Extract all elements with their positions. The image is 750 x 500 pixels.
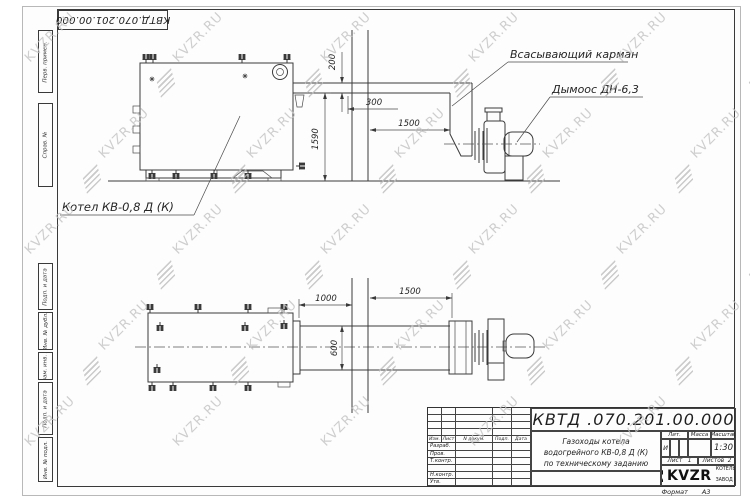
boiler-label: Котел КВ-0,8 Д (К) xyxy=(62,200,174,214)
title-block-doc-number: КВТД .070.201.00.000 xyxy=(531,408,736,431)
title-block-cell xyxy=(512,465,531,472)
kvzr-logo-icon xyxy=(661,470,663,482)
annotation-suction-pocket: Всасывающий карман xyxy=(510,48,638,61)
title-block-cell xyxy=(456,443,493,450)
company-name-line1: КОТЕЛЬНЫЙ xyxy=(716,467,736,472)
title-block-cell xyxy=(493,415,512,422)
sheets-cell: Листов 2 xyxy=(698,457,736,465)
title-block-cell xyxy=(456,408,493,415)
lit-header: Лит. xyxy=(661,431,688,439)
format-label: Формат А3 xyxy=(638,488,734,497)
title-block-cell xyxy=(512,472,531,479)
format-value: А3 xyxy=(702,488,711,497)
title-block-cell: Н.контр. xyxy=(428,472,456,479)
title-block-cell xyxy=(512,458,531,465)
leader-suction xyxy=(452,62,508,106)
title-block-cell: Дата xyxy=(512,436,531,443)
title-block-cell xyxy=(512,443,531,450)
dim-wall-to-fan: 1500 xyxy=(399,287,421,297)
title-block-cell xyxy=(456,451,493,458)
gas-duct-side xyxy=(293,83,472,107)
sheets-value: 2 xyxy=(728,458,732,464)
fan-motor-plan xyxy=(506,334,534,358)
dim-duct-width: 600 xyxy=(330,340,340,356)
title-block-cell xyxy=(442,422,456,429)
title-block-cell xyxy=(456,422,493,429)
side-view: 200 300 1500 1590 Всасывающий карман Дым… xyxy=(60,30,643,215)
title-block-cell xyxy=(428,422,442,429)
title-block-cell xyxy=(493,479,512,486)
dim-outlet-height: 1590 xyxy=(311,128,321,150)
suction-pocket-side xyxy=(450,83,472,156)
title-block-cell xyxy=(442,415,456,422)
company-cell: KVZR КОТЕЛЬНЫЙ ЗАВОД РЭП xyxy=(661,465,736,486)
flange-circle xyxy=(273,65,288,80)
title-block-cell xyxy=(493,472,512,479)
title-block: Изм.ЛистN докум.Подп.ДатаРазраб.Пров.Т.к… xyxy=(427,407,735,487)
title-block-cell xyxy=(456,472,493,479)
dim-fan-distance: 1500 xyxy=(398,119,420,129)
scale-header: Масштаб xyxy=(711,431,736,439)
scale-value: 1:30 xyxy=(711,439,736,457)
title-block-cell xyxy=(512,479,531,486)
title-block-empty-cell xyxy=(531,471,661,486)
title-block-cell xyxy=(456,465,493,472)
smoke-exhauster-side xyxy=(444,108,540,180)
smoke-exhauster-plan xyxy=(475,319,534,380)
title-block-cell xyxy=(456,479,493,486)
title-block-cell xyxy=(493,465,512,472)
title-block-cell xyxy=(512,415,531,422)
title-block-cell xyxy=(442,429,456,436)
title-block-cell: Изм. xyxy=(428,436,442,443)
title-block-signature-table: Изм.ЛистN докум.Подп.ДатаРазраб.Пров.Т.к… xyxy=(428,408,531,486)
title-block-cell: Пров. xyxy=(428,451,456,458)
lit-cell-2 xyxy=(670,439,679,457)
side-view-dimensions: 200 300 1500 1590 xyxy=(296,52,450,181)
title-block-cell: Разраб. xyxy=(428,443,456,450)
title-block-cell xyxy=(493,458,512,465)
title-block-cell xyxy=(428,408,442,415)
title-block-cell xyxy=(493,408,512,415)
lit-value: И xyxy=(661,439,670,457)
scanned-drawing-sheet: КВТД.070.201.00.000 xyxy=(0,0,750,500)
leader-fan xyxy=(517,97,550,142)
boiler-plan-view xyxy=(147,304,301,391)
mass-header: Масса xyxy=(688,431,711,439)
title-block-cell xyxy=(456,458,493,465)
leader-boiler xyxy=(194,116,240,215)
title-block-cell xyxy=(456,429,493,436)
title-block-cell xyxy=(456,415,493,422)
mass-value xyxy=(688,439,711,457)
dim-boiler-to-wall: 1000 xyxy=(315,294,337,304)
title-block-cell xyxy=(493,429,512,436)
sheet-cell: Лист 1 xyxy=(661,457,698,465)
plan-view: 1000 1500 600 xyxy=(135,278,545,413)
title-block-cell: Т.контр. xyxy=(428,458,456,465)
title-block-cell xyxy=(442,408,456,415)
annotation-fan: Дымоос ДН-6,3 xyxy=(551,83,639,96)
lit-cell-3 xyxy=(679,439,688,457)
title-block-cell xyxy=(428,415,442,422)
duct-drain-detail xyxy=(295,95,304,107)
gas-duct-plan xyxy=(300,321,472,374)
sheet-label: Лист xyxy=(668,458,683,464)
title-block-cell xyxy=(493,422,512,429)
title-block-cell xyxy=(512,422,531,429)
title-block-cell: Лист xyxy=(442,436,456,443)
title-block-description: Газоходы котела водогрейного КВ-0,8 Д (К… xyxy=(531,431,661,471)
sheet-value: 1 xyxy=(688,458,692,464)
dim-wall-offset: 300 xyxy=(366,98,382,108)
title-block-cell xyxy=(428,465,456,472)
title-block-cell: N докум. xyxy=(456,436,493,443)
format-word: Формат xyxy=(662,488,688,497)
title-block-cell xyxy=(493,451,512,458)
doc-number-text: КВТД .070.201.00.000 xyxy=(532,410,734,429)
title-block-cell: Подп. xyxy=(493,436,512,443)
dim-duct-height: 200 xyxy=(328,54,338,70)
company-name: КОТЕЛЬНЫЙ ЗАВОД РЭП xyxy=(716,467,736,485)
title-block-cell xyxy=(493,443,512,450)
title-block-cell xyxy=(512,408,531,415)
building-wall-plan xyxy=(352,278,368,413)
title-block-cell xyxy=(512,429,531,436)
kvzr-logo-text: KVZR xyxy=(667,468,712,484)
title-block-cell xyxy=(428,429,442,436)
plan-view-dimensions: 1000 1500 600 xyxy=(299,287,452,370)
title-block-cell xyxy=(512,451,531,458)
company-name-line2: ЗАВОД РЭП xyxy=(716,478,736,483)
title-block-cell: Утв. xyxy=(428,479,456,486)
sheets-label: Листов xyxy=(703,458,725,464)
